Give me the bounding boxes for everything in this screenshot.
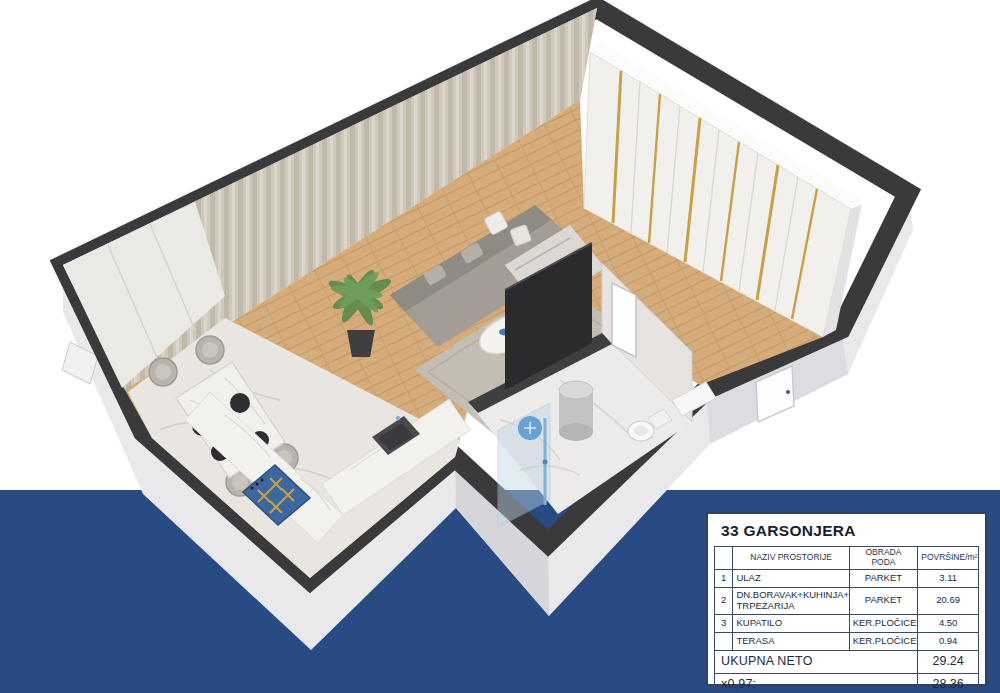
total-row: UKUPNA NETO 29.24 [715, 650, 979, 673]
spec-table: NAZIV PROSTORIJE OBRADA PODA POVRŠINE/m²… [714, 546, 979, 693]
row-2-num: 2 [715, 587, 733, 614]
row-3-num: 3 [715, 614, 733, 632]
row-1-area: 3.11 [918, 569, 979, 587]
row-2-floor: PARKET [849, 587, 918, 614]
page: { "page": { "background_color": "#ffffff… [0, 0, 1000, 693]
total-neto-value: 29.24 [918, 650, 979, 673]
total-row: x0,97: 28.36 [715, 673, 979, 693]
table-row: 2 DN.BORAVAK+KUHINJA+ TRPEZARIJA PARKET … [715, 587, 979, 614]
table-row: 1 ULAZ PARKET 3.11 [715, 569, 979, 587]
row-1-floor: PARKET [849, 569, 918, 587]
header-num [715, 547, 733, 570]
coef-value: 28.36 [918, 673, 979, 693]
unit-title: 33 GARSONJERA [708, 514, 985, 546]
table-row: 3 KUPATILO KER.PLOČICE 4.50 [715, 614, 979, 632]
bathroom-door [612, 283, 636, 357]
row-2-area: 20.69 [918, 587, 979, 614]
row-1-num: 1 [715, 569, 733, 587]
table-row: TERASA KER.PLOČICE 0.94 [715, 632, 979, 650]
row-3-area: 4.50 [918, 614, 979, 632]
row-3-name: KUPATILO [733, 614, 849, 632]
row-2-name: DN.BORAVAK+KUHINJA+ TRPEZARIJA [733, 587, 849, 614]
header-name: NAZIV PROSTORIJE [733, 547, 849, 570]
coef-label: x0,97: [715, 673, 918, 693]
header-area: POVRŠINE/m² [918, 547, 979, 570]
row-1-name: ULAZ [733, 569, 849, 587]
header-row: NAZIV PROSTORIJE OBRADA PODA POVRŠINE/m² [715, 547, 979, 570]
info-card: 33 GARSONJERA NAZIV PROSTORIJE OBRADA PO… [706, 512, 987, 686]
total-neto-label: UKUPNA NETO [715, 650, 918, 673]
row-3-floor: KER.PLOČICE [849, 614, 918, 632]
row-4-name: TERASA [733, 632, 849, 650]
header-floor: OBRADA PODA [849, 547, 918, 570]
row-4-num [715, 632, 733, 650]
water-heater [559, 381, 593, 441]
row-4-floor: KER.PLOČICE [849, 632, 918, 650]
row-4-area: 0.94 [918, 632, 979, 650]
